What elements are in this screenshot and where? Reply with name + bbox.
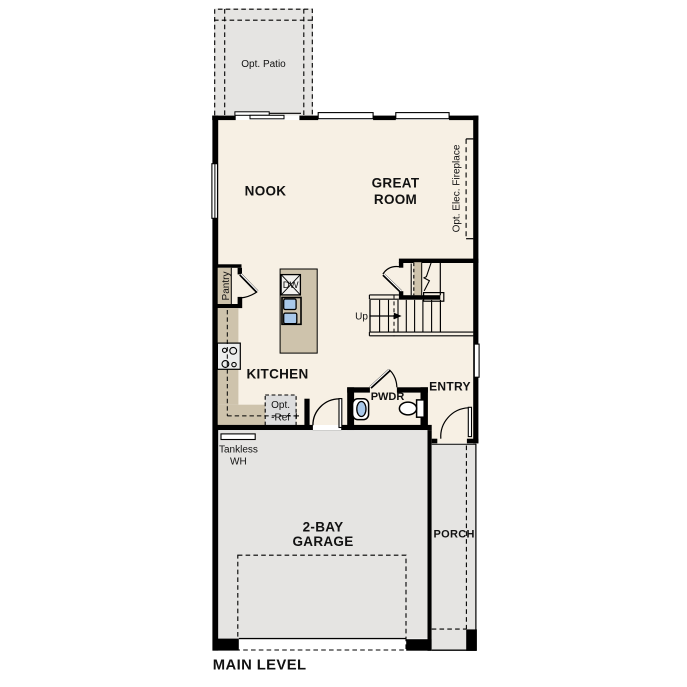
svg-text:PWDR: PWDR (371, 391, 405, 403)
svg-text:Pantry: Pantry (221, 272, 232, 301)
svg-text:WH: WH (230, 457, 247, 468)
svg-text:Tankless: Tankless (219, 445, 258, 456)
svg-text:2-BAY: 2-BAY (303, 520, 344, 535)
svg-text:Opt. Elec. Fireplace: Opt. Elec. Fireplace (452, 144, 463, 232)
svg-text:GARAGE: GARAGE (292, 534, 353, 549)
svg-text:DW: DW (283, 280, 299, 291)
svg-text:GREAT: GREAT (372, 175, 420, 190)
svg-text:Opt.: Opt. (271, 400, 290, 411)
svg-text:Opt. Patio: Opt. Patio (241, 59, 286, 70)
svg-text:MAIN LEVEL: MAIN LEVEL (213, 658, 307, 674)
svg-text:KITCHEN: KITCHEN (246, 367, 308, 382)
svg-text:ROOM: ROOM (374, 192, 417, 207)
svg-text:ENTRY: ENTRY (429, 380, 471, 394)
svg-text:PORCH: PORCH (433, 529, 474, 541)
svg-text:-Ref: -Ref (271, 413, 290, 424)
svg-text:Up: Up (355, 312, 368, 323)
svg-text:NOOK: NOOK (245, 184, 287, 199)
